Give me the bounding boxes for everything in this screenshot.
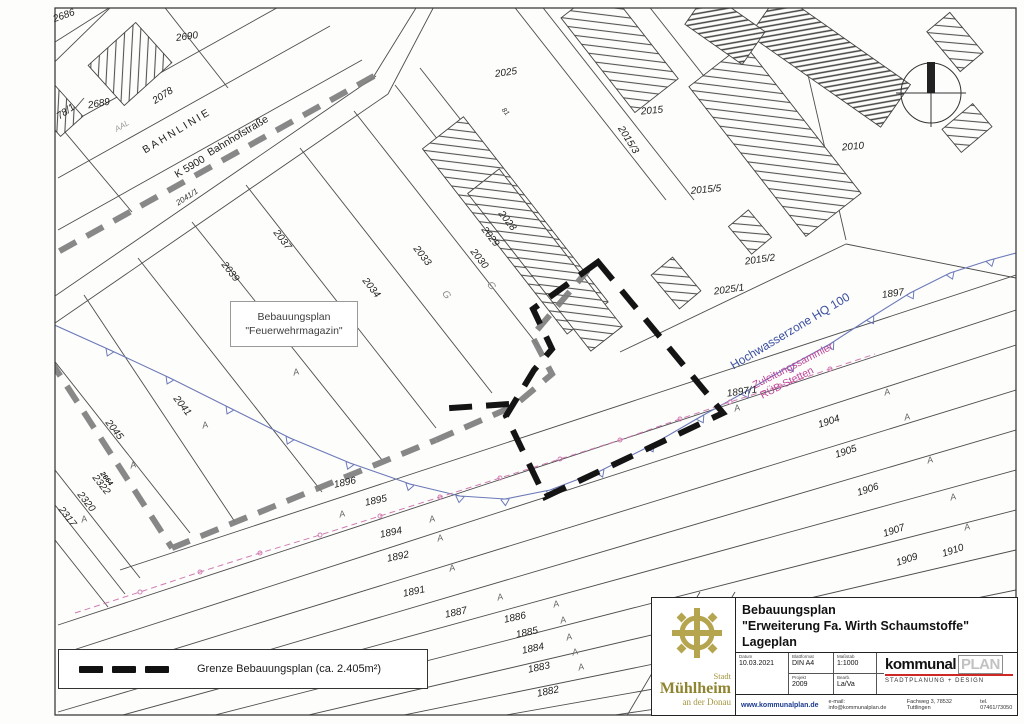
firm-address: Fachweg 3, 78532 Tuttlingen [907,699,970,711]
map-label: A [963,521,971,532]
map-label: A [571,646,579,657]
plan-title: Bebauungsplan "Erweiterung Fa. Wirth Sch… [736,598,1017,653]
plan-title-line1: Bebauungsplan [742,602,1017,618]
info-box-line2: "Feuerwehrmagazin" [231,324,357,338]
map-label: A [496,591,504,602]
map-label: 2015/3 [615,124,641,156]
firm-name-part2: PLAN [958,655,1003,674]
map-label: 1891 [402,584,426,599]
firm-phone: tel. 07461/73050 [980,699,1017,711]
firm-email: e-mail: info@kommunalplan.de [829,699,897,711]
map-label: 1896 [333,475,357,490]
map-label: A [201,419,209,430]
map-label: 1894 [379,525,403,540]
map-label: 2030 [468,247,490,271]
map-label: A [883,386,891,397]
map-label: 2015/5 [690,183,721,197]
map-label: AAL [113,118,131,134]
map-label: 1905 [834,443,859,460]
city-suffix: an der Donau [660,698,731,707]
map-label: BAHNLINIE [141,106,214,156]
map-label: 2034 [360,276,382,300]
map-label: 2689 [87,97,111,112]
map-label: 2015/2 [744,252,776,267]
map-label: 2690 [175,30,199,44]
map-label: A [129,459,137,470]
map-label: 2028 [496,209,518,233]
logo-red-underline [885,674,1013,676]
map-label: 2041 [171,394,193,418]
map-label: A [292,366,300,377]
map-label: 2686 [52,7,77,25]
legend-box: Grenze Bebauungsplan (ca. 2.405m²) [58,649,428,689]
map-label: Bahnhofstraße [205,113,270,159]
map-label: 1895 [364,493,388,508]
title-block: Stadt Mühlheim an der Donau Bebauungspla… [651,597,1018,716]
field-projekt: Projekt 2009 [789,674,839,694]
map-label: 1885 [515,625,539,640]
map-label: 2010 [841,141,864,154]
map-label: 2025/1 [713,282,745,297]
map-label: A [577,661,585,672]
city-name: Mühlheim [660,681,731,698]
muehlheim-emblem-icon [668,606,726,664]
map-label: A [448,562,456,573]
map-label: 1886 [503,610,527,625]
map-label: 78/1 [55,102,77,122]
map-label: A [428,513,436,524]
map-label: K 5900 [173,153,208,180]
map-label: 1907 [882,522,907,539]
map-label: 2317 [56,505,78,529]
map-label: A [926,454,934,465]
map-label: A [903,411,911,422]
map-label: A [552,598,560,609]
kommunalplan-logo: kommunalPLAN STADTPLANUNG + DESIGN [877,653,1017,694]
field-blattformat: Blattformat DIN A4 [789,653,839,674]
map-label: 2078 [151,85,176,106]
map-label: A [565,631,573,642]
map-label: 2025 [494,66,518,80]
map-label: 1883 [527,660,551,675]
map-label: 2037 [271,228,293,252]
map-label: 2029 [479,225,501,249]
city-logo-cell: Stadt Mühlheim an der Donau [652,598,736,715]
map-label: 1909 [895,551,920,568]
map-label: 1904 [817,413,842,430]
map-label: 81 [500,107,510,117]
map-label: 2041/1 [174,187,199,208]
boundary-dash-symbol [79,666,169,673]
map-label: 2039 [219,260,241,284]
firm-website: www.kommunalplan.de [741,702,819,709]
field-datum: Datum 10.03.2021 [736,653,788,694]
firm-name-part1: kommunal [885,656,956,673]
legend-label: Grenze Bebauungsplan (ca. 2.405m²) [197,663,381,675]
map-label: 2015 [640,105,663,118]
map-label: A [949,491,957,502]
site-plan-page: 26862690268978/120782041/1BAHNLINIEK 590… [0,0,1024,724]
map-label: G [484,280,497,293]
map-label: 1897 [881,287,905,301]
firm-subtitle: STADTPLANUNG + DESIGN [885,678,1013,684]
map-label: 1892 [386,549,410,564]
map-label: A [338,508,346,519]
city-logo-text: Stadt Mühlheim an der Donau [660,672,731,707]
title-block-footer: www.kommunalplan.de e-mail: info@kommuna… [736,695,1017,715]
map-label: 2320 [75,490,97,514]
map-label: A [559,614,567,625]
map-label: 1882 [536,684,560,699]
map-label: G [439,289,452,302]
plan-title-line3: Lageplan [742,634,1017,650]
map-label: 2045 [103,418,125,442]
map-label: A [436,532,444,543]
map-label: 1884 [521,641,545,656]
map-label: 1906 [856,481,881,498]
plan-title-line2: "Erweiterung Fa. Wirth Schaumstoffe" [742,618,1017,634]
map-label: 1910 [941,542,966,559]
map-label: A [80,513,88,524]
map-label: 2033 [411,244,433,268]
info-box-line1: Bebauungsplan [231,310,357,324]
map-label: A [733,402,741,413]
info-box-feuerwehrmagazin: Bebauungsplan "Feuerwehrmagazin" [230,301,358,347]
map-label: 1887 [444,605,468,620]
